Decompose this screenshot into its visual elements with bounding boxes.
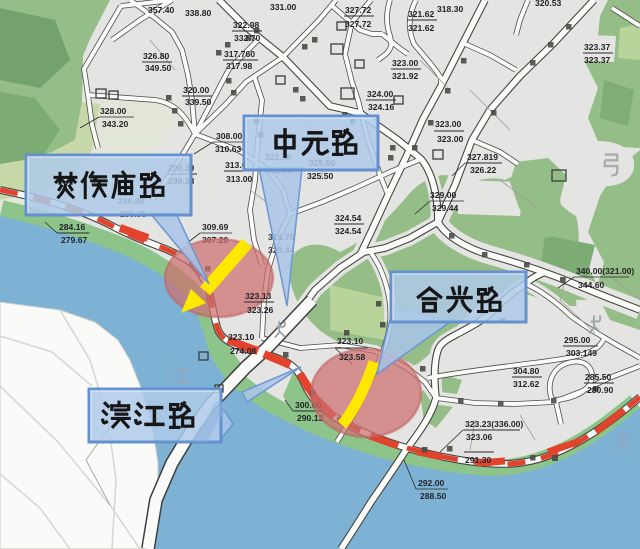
svg-text:323.00: 323.00 xyxy=(392,58,419,68)
svg-text:324.54: 324.54 xyxy=(335,213,362,223)
svg-text:288.50: 288.50 xyxy=(420,491,447,501)
svg-text:323.00: 323.00 xyxy=(437,134,464,144)
svg-text:329.00: 329.00 xyxy=(430,190,457,200)
svg-text:323.26: 323.26 xyxy=(247,305,274,315)
svg-text:323.37: 323.37 xyxy=(584,55,611,65)
svg-text:323.00: 323.00 xyxy=(435,119,462,129)
svg-text:357.40: 357.40 xyxy=(148,5,175,15)
svg-text:284.16: 284.16 xyxy=(59,222,86,232)
svg-text:329.44: 329.44 xyxy=(432,203,459,213)
svg-text:344.60: 344.60 xyxy=(578,280,605,290)
svg-text:313.00: 313.00 xyxy=(226,174,253,184)
svg-text:323.37: 323.37 xyxy=(584,42,611,52)
svg-text:279.67: 279.67 xyxy=(61,235,88,245)
svg-text:291.30: 291.30 xyxy=(465,455,492,465)
svg-text:310.63: 310.63 xyxy=(215,144,242,154)
svg-text:331.00: 331.00 xyxy=(270,2,297,12)
svg-text:318.30: 318.30 xyxy=(437,4,464,14)
svg-text:317.760: 317.760 xyxy=(224,49,255,59)
svg-text:332.70: 332.70 xyxy=(234,33,261,43)
svg-text:280.90: 280.90 xyxy=(587,385,614,395)
svg-text:327.819: 327.819 xyxy=(467,152,498,162)
svg-text:292.00: 292.00 xyxy=(418,478,445,488)
svg-text:321.92: 321.92 xyxy=(392,71,419,81)
svg-text:327.72: 327.72 xyxy=(345,5,372,15)
svg-text:320.00: 320.00 xyxy=(183,85,210,95)
svg-text:343.20: 343.20 xyxy=(102,119,129,129)
svg-text:309.69: 309.69 xyxy=(202,222,229,232)
svg-text:323.10: 323.10 xyxy=(337,336,364,346)
svg-text:304.80: 304.80 xyxy=(513,366,540,376)
svg-text:324.16: 324.16 xyxy=(368,102,395,112)
svg-text:328.00: 328.00 xyxy=(100,106,127,116)
svg-text:323.06: 323.06 xyxy=(466,432,493,442)
svg-text:274.08: 274.08 xyxy=(230,346,257,356)
svg-text:323.23(336.00): 323.23(336.00) xyxy=(465,419,523,429)
svg-text:321.62: 321.62 xyxy=(408,9,435,19)
svg-text:323.13: 323.13 xyxy=(245,291,272,301)
svg-text:308.00: 308.00 xyxy=(216,131,243,141)
svg-text:326.22: 326.22 xyxy=(470,165,497,175)
svg-text:312.62: 312.62 xyxy=(513,379,540,389)
svg-text:323.10: 323.10 xyxy=(228,332,255,342)
svg-text:324.54: 324.54 xyxy=(335,226,362,236)
svg-text:320.53: 320.53 xyxy=(535,0,562,8)
svg-text:327.72: 327.72 xyxy=(345,19,372,29)
svg-text:338.80: 338.80 xyxy=(185,8,212,18)
svg-text:325.50: 325.50 xyxy=(307,171,334,181)
svg-text:339.50: 339.50 xyxy=(185,97,212,107)
svg-text:285.50: 285.50 xyxy=(585,372,612,382)
svg-text:323.58: 323.58 xyxy=(339,352,366,362)
svg-text:303.149: 303.149 xyxy=(566,348,597,358)
svg-text:324.00: 324.00 xyxy=(367,89,394,99)
svg-text:321.62: 321.62 xyxy=(408,23,435,33)
svg-text:317.98: 317.98 xyxy=(226,61,253,71)
svg-text:295.00: 295.00 xyxy=(564,335,591,345)
svg-text:349.50: 349.50 xyxy=(145,63,172,73)
svg-text:326.80: 326.80 xyxy=(143,51,170,61)
svg-text:322.98: 322.98 xyxy=(233,20,260,30)
svg-text:340.00(321.00): 340.00(321.00) xyxy=(576,266,634,276)
